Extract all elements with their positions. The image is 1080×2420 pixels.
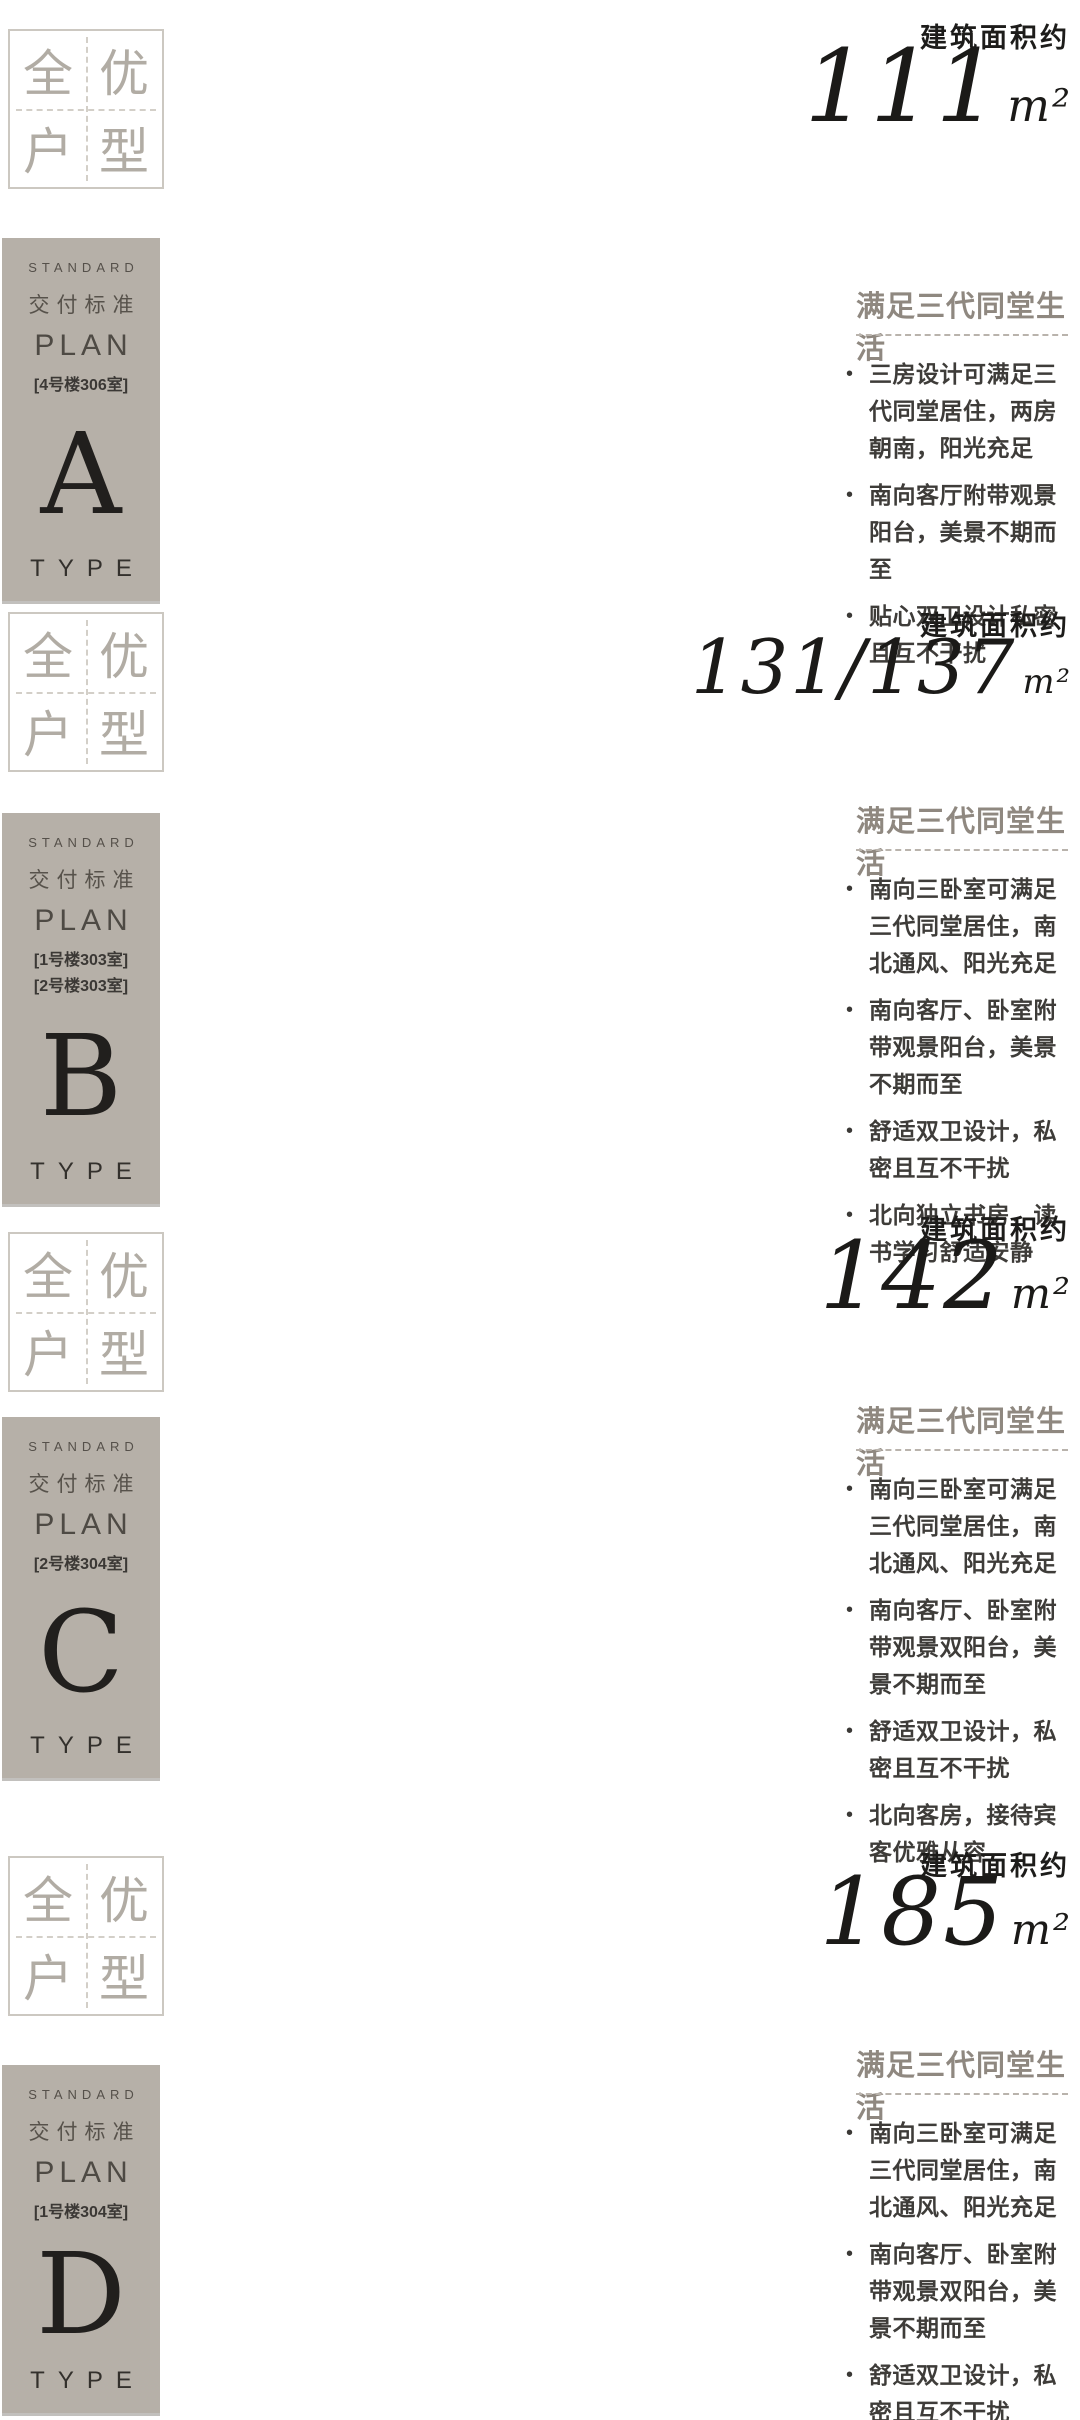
plan-letter: D bbox=[36, 2222, 126, 2367]
bullet-dot-icon: • bbox=[846, 356, 853, 467]
badge-char: 全 bbox=[10, 1858, 86, 1936]
panel-delivery-label: 交付标准 bbox=[22, 1468, 141, 1498]
brochure-page: 全优户型 STANDARD 交付标准 PLAN [4号楼306室] A TYPE… bbox=[0, 0, 1080, 2420]
benefit-item: •舒适双卫设计，私密且互不干扰 bbox=[846, 1713, 1076, 1787]
bullet-dot-icon: • bbox=[846, 1471, 853, 1582]
room-number-line: [2号楼304室] bbox=[34, 1550, 128, 1574]
floor-plan-c bbox=[150, 1225, 830, 1830]
panel-plan-label: PLAN bbox=[29, 2156, 132, 2190]
benefit-item: •舒适双卫设计，私密且互不干扰 bbox=[846, 1113, 1076, 1187]
plan-letter: A bbox=[41, 395, 122, 555]
room-number-line: [1号楼304室] bbox=[34, 2198, 128, 2222]
badge-char: 全 bbox=[10, 1234, 86, 1312]
area-value: 185m² bbox=[820, 1864, 1073, 1963]
bullet-dot-icon: • bbox=[846, 2236, 853, 2347]
badge-char: 型 bbox=[86, 109, 162, 187]
benefit-text: 舒适双卫设计，私密且互不干扰 bbox=[869, 2357, 1076, 2420]
badge-char: 优 bbox=[86, 1858, 162, 1936]
benefit-list: •南向三卧室可满足三代同堂居住，南北通风、阳光充足•南向客厅、卧室附带观景双阳台… bbox=[846, 1471, 1076, 1871]
bullet-dot-icon: • bbox=[846, 2115, 853, 2226]
panel-room-numbers: [1号楼303室][2号楼303室] bbox=[34, 946, 128, 996]
panel-room-numbers: [4号楼306室] bbox=[34, 371, 128, 395]
badge-char: 型 bbox=[86, 692, 162, 770]
standard-panel-c: STANDARD 交付标准 PLAN [2号楼304室] C TYPE bbox=[2, 1417, 160, 1778]
benefit-text: 舒适双卫设计，私密且互不干扰 bbox=[869, 1713, 1076, 1787]
bullet-dot-icon: • bbox=[846, 1113, 853, 1187]
room-number-line: [2号楼303室] bbox=[34, 972, 128, 996]
bullet-dot-icon: • bbox=[846, 1713, 853, 1787]
floor-plan-d bbox=[160, 1835, 805, 2415]
benefit-text: 南向客厅、卧室附带观景双阳台，美景不期而至 bbox=[869, 1592, 1076, 1703]
panel-standard-label: STANDARD bbox=[23, 2087, 139, 2102]
benefit-item: •南向客厅、卧室附带观景双阳台，美景不期而至 bbox=[846, 2236, 1076, 2347]
badge-char: 全 bbox=[10, 31, 86, 109]
benefit-title: 满足三代同堂生活 bbox=[856, 798, 1080, 882]
panel-type-label: TYPE bbox=[17, 1732, 145, 1760]
badge-char: 户 bbox=[10, 109, 86, 187]
area-value: 131/137m² bbox=[691, 628, 1072, 707]
benefit-text: 三房设计可满足三代同堂居住，两房朝南，阳光充足 bbox=[869, 356, 1076, 467]
benefit-title: 满足三代同堂生活 bbox=[856, 283, 1080, 367]
dashed-divider bbox=[856, 2093, 1068, 2095]
benefit-item: •三房设计可满足三代同堂居住，两房朝南，阳光充足 bbox=[846, 356, 1076, 467]
dashed-divider bbox=[856, 334, 1068, 336]
benefit-item: •南向客厅、卧室附带观景双阳台，美景不期而至 bbox=[846, 1592, 1076, 1703]
dashed-divider bbox=[856, 1449, 1068, 1451]
panel-type-label: TYPE bbox=[17, 2367, 145, 2395]
benefit-text: 南向客厅附带观景阳台，美景不期而至 bbox=[869, 477, 1076, 588]
room-number-line: [4号楼306室] bbox=[34, 371, 128, 395]
benefit-text: 南向三卧室可满足三代同堂居住，南北通风、阳光充足 bbox=[869, 871, 1076, 982]
quality-badge-c: 全优户型 bbox=[8, 1232, 164, 1392]
standard-panel-b: STANDARD 交付标准 PLAN [1号楼303室][2号楼303室] B … bbox=[2, 813, 160, 1204]
badge-char: 户 bbox=[10, 1936, 86, 2014]
quality-badge-d: 全优户型 bbox=[8, 1856, 164, 2016]
panel-standard-label: STANDARD bbox=[23, 260, 139, 275]
area-value: 111m² bbox=[804, 34, 1072, 139]
plan-letter: C bbox=[38, 1574, 124, 1732]
room-number-line: [1号楼303室] bbox=[34, 946, 128, 970]
panel-plan-label: PLAN bbox=[29, 1508, 132, 1542]
badge-char: 户 bbox=[10, 1312, 86, 1390]
quality-badge-a: 全优户型 bbox=[8, 29, 164, 189]
panel-delivery-label: 交付标准 bbox=[22, 289, 141, 319]
bullet-dot-icon: • bbox=[846, 871, 853, 982]
area-value: 142m² bbox=[820, 1228, 1073, 1327]
panel-type-label: TYPE bbox=[17, 555, 145, 583]
bullet-dot-icon: • bbox=[846, 992, 853, 1103]
benefit-text: 南向三卧室可满足三代同堂居住，南北通风、阳光充足 bbox=[869, 2115, 1076, 2226]
floor-plan-a bbox=[180, 10, 820, 595]
floor-plan-b bbox=[180, 635, 820, 1220]
quality-badge-b: 全优户型 bbox=[8, 612, 164, 772]
bullet-dot-icon: • bbox=[846, 1592, 853, 1703]
badge-char: 优 bbox=[86, 614, 162, 692]
standard-panel-d: STANDARD 交付标准 PLAN [1号楼304室] D TYPE bbox=[2, 2065, 160, 2413]
bullet-dot-icon: • bbox=[846, 477, 853, 588]
badge-char: 型 bbox=[86, 1936, 162, 2014]
benefit-item: •南向三卧室可满足三代同堂居住，南北通风、阳光充足 bbox=[846, 2115, 1076, 2226]
benefit-item: •南向客厅、卧室附带观景阳台，美景不期而至 bbox=[846, 992, 1076, 1103]
badge-char: 户 bbox=[10, 692, 86, 770]
benefit-title: 满足三代同堂生活 bbox=[856, 1398, 1080, 1482]
panel-room-numbers: [1号楼304室] bbox=[34, 2198, 128, 2222]
panel-delivery-label: 交付标准 bbox=[22, 2116, 141, 2146]
dashed-divider bbox=[856, 849, 1068, 851]
benefit-text: 南向客厅、卧室附带观景阳台，美景不期而至 bbox=[869, 992, 1076, 1103]
benefit-text: 南向三卧室可满足三代同堂居住，南北通风、阳光充足 bbox=[869, 1471, 1076, 1582]
panel-plan-label: PLAN bbox=[29, 904, 132, 938]
plan-letter: B bbox=[40, 996, 122, 1158]
benefit-list: •南向三卧室可满足三代同堂居住，南北通风、阳光充足•南向客厅、卧室附带观景双阳台… bbox=[846, 2115, 1076, 2420]
panel-plan-label: PLAN bbox=[29, 329, 132, 363]
benefit-title: 满足三代同堂生活 bbox=[856, 2042, 1080, 2126]
badge-char: 全 bbox=[10, 614, 86, 692]
benefit-item: •南向三卧室可满足三代同堂居住，南北通风、阳光充足 bbox=[846, 871, 1076, 982]
benefit-item: •舒适双卫设计，私密且互不干扰 bbox=[846, 2357, 1076, 2420]
benefit-item: •南向客厅附带观景阳台，美景不期而至 bbox=[846, 477, 1076, 588]
panel-room-numbers: [2号楼304室] bbox=[34, 1550, 128, 1574]
panel-delivery-label: 交付标准 bbox=[22, 864, 141, 894]
bullet-dot-icon: • bbox=[846, 2357, 853, 2420]
benefit-text: 舒适双卫设计，私密且互不干扰 bbox=[869, 1113, 1076, 1187]
badge-char: 优 bbox=[86, 31, 162, 109]
panel-type-label: TYPE bbox=[17, 1158, 145, 1186]
benefit-item: •南向三卧室可满足三代同堂居住，南北通风、阳光充足 bbox=[846, 1471, 1076, 1582]
panel-standard-label: STANDARD bbox=[23, 835, 139, 850]
standard-panel-a: STANDARD 交付标准 PLAN [4号楼306室] A TYPE bbox=[2, 238, 160, 601]
benefit-text: 南向客厅、卧室附带观景双阳台，美景不期而至 bbox=[869, 2236, 1076, 2347]
panel-standard-label: STANDARD bbox=[23, 1439, 139, 1454]
